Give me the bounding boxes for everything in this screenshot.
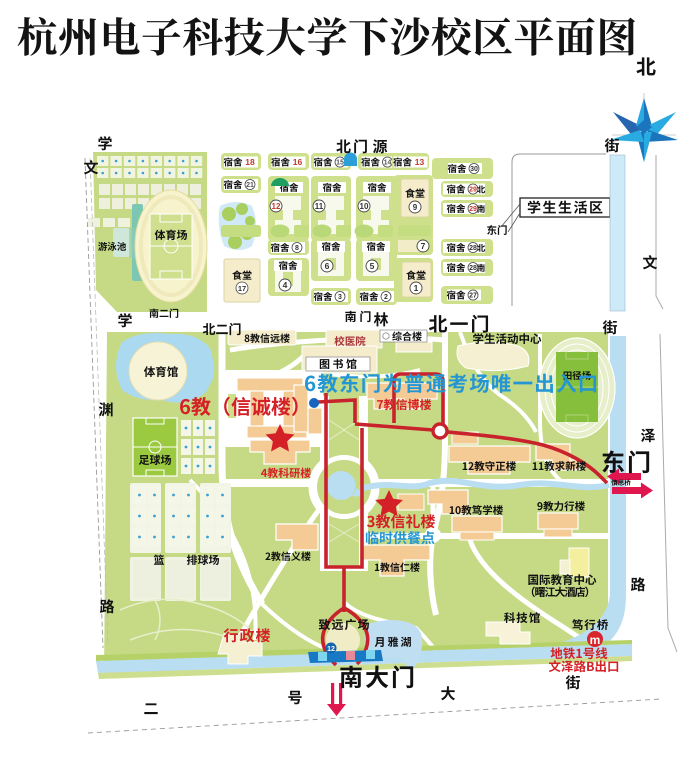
svg-text:28: 28 [469,265,477,272]
svg-text:16: 16 [293,157,303,167]
svg-text:17: 17 [238,284,246,293]
svg-text:29: 29 [469,206,477,213]
svg-text:2: 2 [384,294,388,301]
svg-text:18: 18 [245,157,255,167]
svg-text:12: 12 [272,202,281,211]
svg-text:30: 30 [470,166,478,173]
svg-text:m: m [590,633,601,647]
svg-text:15: 15 [336,160,344,167]
svg-text:8: 8 [295,245,299,252]
svg-text:10: 10 [360,202,369,211]
svg-text:5: 5 [370,261,375,271]
svg-text:14: 14 [384,160,392,167]
svg-text:7: 7 [421,241,426,251]
svg-text:12: 12 [327,646,335,653]
svg-text:9: 9 [413,203,418,212]
svg-text:11: 11 [315,202,324,211]
svg-text:21: 21 [246,182,254,189]
svg-text:6: 6 [325,261,330,271]
svg-text:13: 13 [415,157,425,167]
svg-text:28: 28 [469,245,477,252]
svg-text:1: 1 [414,283,419,293]
svg-text:29: 29 [469,187,477,194]
svg-text:27: 27 [469,293,477,300]
svg-text:4: 4 [283,280,288,290]
svg-text:3: 3 [338,294,342,301]
